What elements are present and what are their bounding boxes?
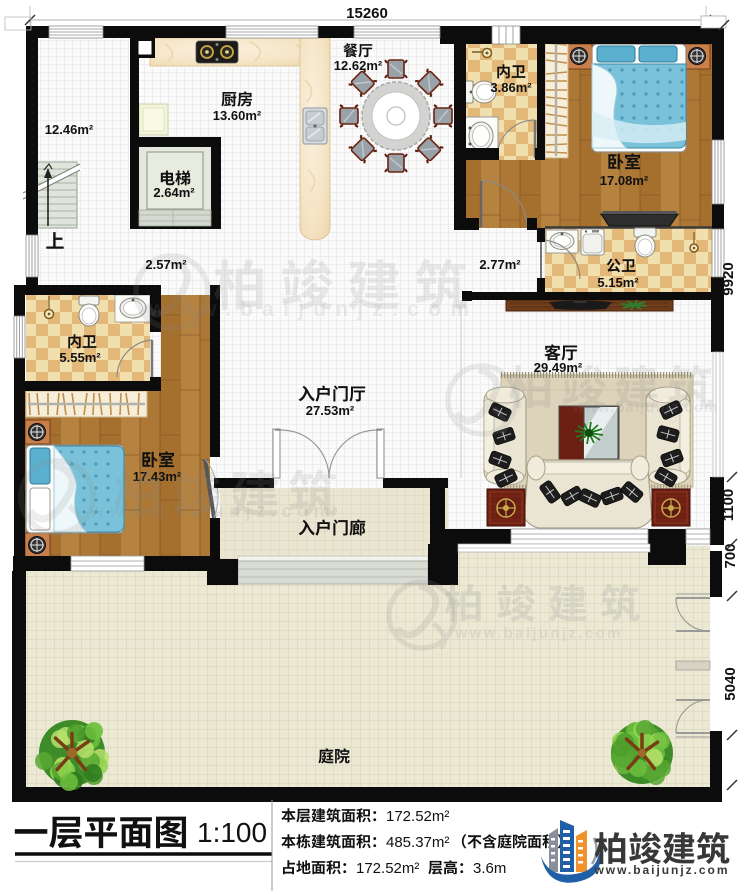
svg-text:2.64m²: 2.64m² bbox=[153, 185, 195, 200]
svg-text:5040: 5040 bbox=[722, 667, 739, 700]
svg-text:2.77m²: 2.77m² bbox=[479, 257, 521, 272]
svg-text:12.62m²: 12.62m² bbox=[334, 58, 383, 73]
svg-text:5.15m²: 5.15m² bbox=[597, 275, 639, 290]
svg-text:3.86m²: 3.86m² bbox=[490, 80, 532, 95]
svg-text:www.baijunjz.com: www.baijunjz.com bbox=[594, 863, 730, 877]
svg-text:1:100: 1:100 bbox=[197, 817, 267, 848]
svg-text:27.53m²: 27.53m² bbox=[306, 403, 355, 418]
svg-text:29.49m²: 29.49m² bbox=[534, 360, 583, 375]
svg-text:1100: 1100 bbox=[720, 489, 737, 522]
svg-text:2.57m²: 2.57m² bbox=[145, 257, 187, 272]
svg-text:172.52m²: 172.52m² bbox=[356, 860, 419, 877]
svg-text:700: 700 bbox=[722, 543, 739, 568]
svg-text:12.46m²: 12.46m² bbox=[45, 122, 94, 137]
svg-text:9920: 9920 bbox=[720, 262, 737, 295]
svg-text:15260: 15260 bbox=[346, 5, 388, 22]
svg-text:172.52m²: 172.52m² bbox=[386, 808, 449, 825]
svg-text:5.55m²: 5.55m² bbox=[59, 350, 101, 365]
svg-text:13.60m²: 13.60m² bbox=[213, 108, 262, 123]
svg-text:www.baijunjz.com: www.baijunjz.com bbox=[572, 399, 718, 416]
svg-text:17.08m²: 17.08m² bbox=[600, 173, 649, 188]
svg-text:3.6m: 3.6m bbox=[473, 860, 506, 877]
svg-text:485.37m²: 485.37m² bbox=[386, 834, 449, 851]
